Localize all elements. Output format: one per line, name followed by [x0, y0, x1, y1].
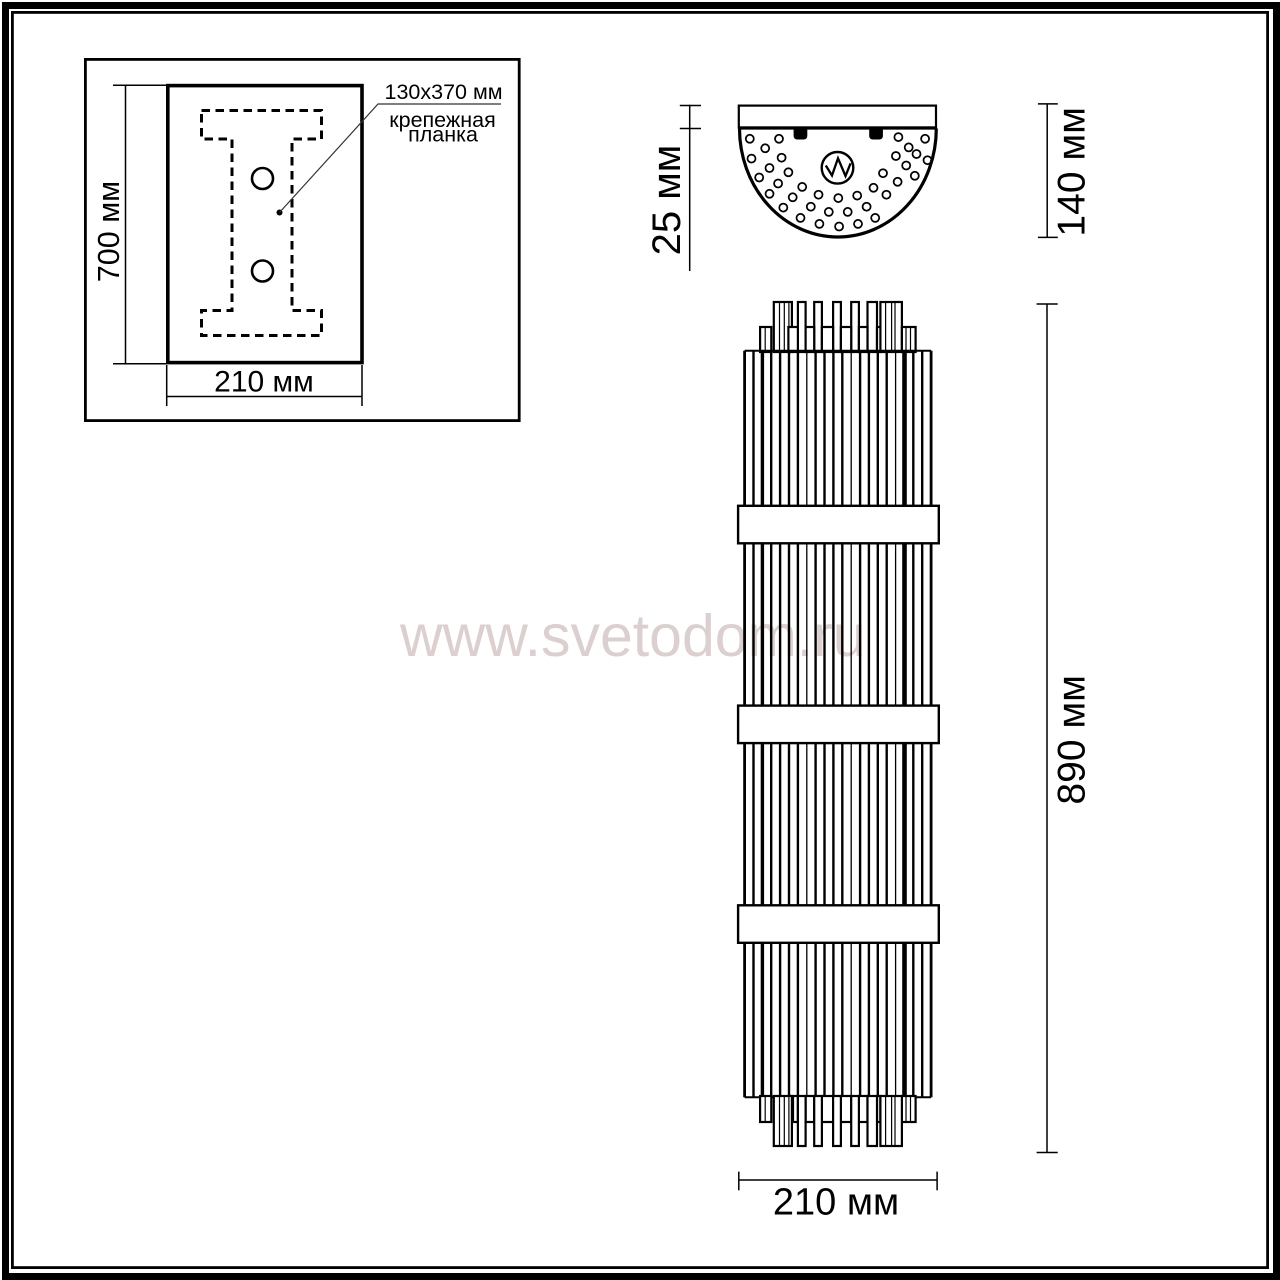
svg-text:210 мм: 210 мм [773, 1182, 899, 1224]
svg-text:210 мм: 210 мм [214, 366, 314, 399]
svg-text:www.svetodom.ru: www.svetodom.ru [399, 603, 866, 669]
svg-text:130x370 мм: 130x370 мм [384, 80, 502, 104]
svg-text:планка: планка [408, 122, 478, 146]
svg-text:140 мм: 140 мм [1050, 107, 1093, 237]
svg-text:700 мм: 700 мм [92, 181, 126, 282]
svg-text:25 мм: 25 мм [645, 145, 689, 256]
svg-text:890 мм: 890 мм [1050, 675, 1093, 805]
